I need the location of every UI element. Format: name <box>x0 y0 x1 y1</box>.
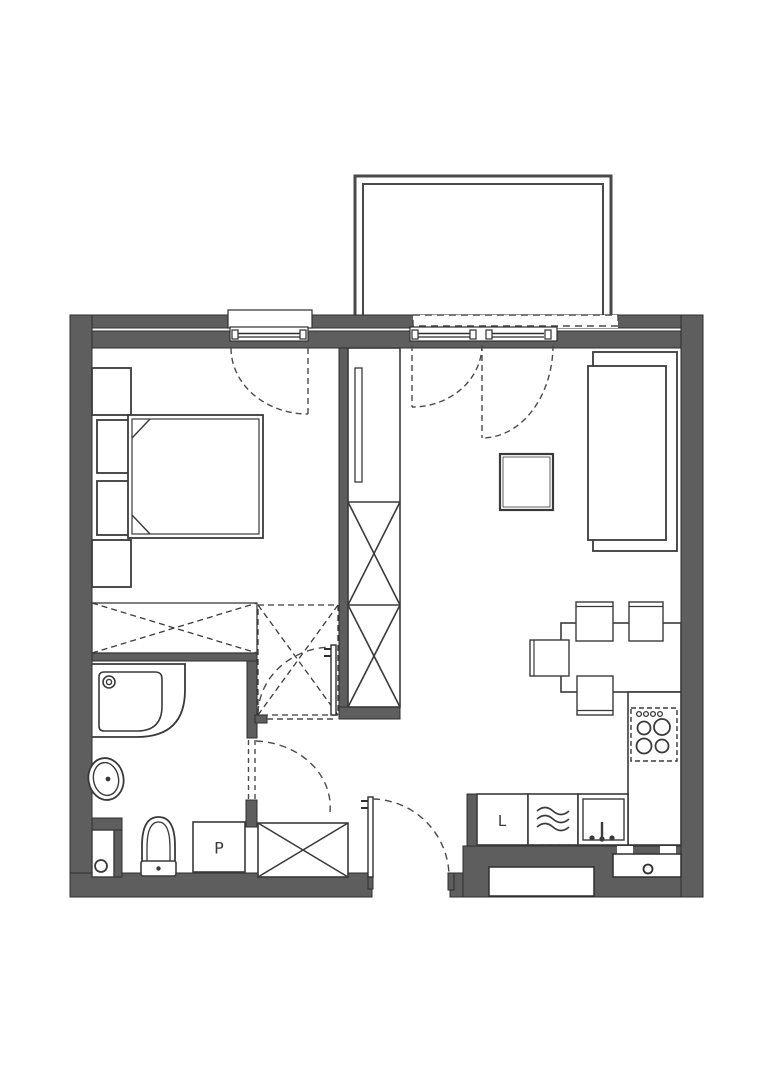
faucet-handle-2 <box>599 836 604 841</box>
balcony-door-swing-arc <box>412 345 482 407</box>
dining-chair-left <box>530 640 569 676</box>
entrance-door-leaf <box>368 797 373 877</box>
bottom-wall-notch-2 <box>660 846 676 854</box>
wall-bathroom-door-hinge-block <box>246 800 257 827</box>
sofa-seat <box>588 366 666 540</box>
bathroom-shaft-wall-side <box>114 830 122 877</box>
bedroom-door-leaf <box>331 645 336 715</box>
bottom-wall-recess <box>489 867 594 896</box>
hall <box>258 823 348 877</box>
floor-plan-page: L P <box>0 0 777 1080</box>
balcony-frame-cap-1 <box>412 330 418 339</box>
coffee-table-inner <box>503 457 550 507</box>
balcony-frame-cap-3 <box>486 330 492 339</box>
bathroom-shaft-wall-top <box>92 818 122 830</box>
entrance-door-swing-arc <box>373 799 449 875</box>
bedroom-window <box>228 310 312 414</box>
kitchen-sink-basin <box>583 799 624 840</box>
balcony-outer-rail <box>355 176 611 315</box>
bedroom-window-cap-right <box>300 330 306 339</box>
wall-bathroom-east <box>247 661 257 738</box>
bed-pillow-bottom <box>97 481 131 535</box>
wall-right <box>681 315 703 897</box>
dining-chair-top-1 <box>576 602 613 641</box>
wardrobe-column <box>348 348 400 707</box>
faucet-handle-3 <box>609 835 614 840</box>
shower-head-icon <box>103 676 115 688</box>
kitchen-counter-end-stub <box>467 794 477 846</box>
shower-head-center <box>106 679 111 684</box>
bedroom-door-swing-arc <box>258 647 331 713</box>
shaft-box <box>92 830 114 877</box>
dining-chair-bottom <box>577 676 613 715</box>
bed-mattress <box>132 419 259 534</box>
balcony-window-swing-arc <box>482 345 553 438</box>
bedroom <box>92 368 338 715</box>
toilet-flush-button <box>156 866 160 870</box>
entrance-door-jamb-right <box>448 873 454 890</box>
wall-top-inner-band <box>70 331 703 348</box>
balcony-frame-cap-2 <box>470 330 476 339</box>
bedroom-window-swing-arc <box>231 348 308 414</box>
shower-enclosure <box>92 664 185 737</box>
balcony-frame-cap-4 <box>545 330 551 339</box>
faucet-handle-1 <box>589 835 594 840</box>
shower-tray <box>99 672 162 731</box>
bottom-wall-notch-1 <box>617 846 633 854</box>
bedroom-window-sill <box>228 310 312 328</box>
nightstand-top <box>92 368 131 415</box>
floor-plan-drawing: L P <box>0 0 777 1080</box>
bed-pillow-top <box>97 420 131 473</box>
wardrobe-column-cap <box>339 707 400 719</box>
fridge-label: L <box>498 812 507 830</box>
bedroom-window-cap-left <box>232 330 238 339</box>
bathroom-door-swing-arc <box>256 741 330 812</box>
bedroom-door-jamb-left <box>255 715 267 723</box>
washing-machine-label: P <box>214 839 224 858</box>
dining-chair-top-2 <box>629 602 663 641</box>
nightstand-bottom <box>92 540 131 587</box>
wall-bedroom-south <box>92 653 257 661</box>
living-room <box>500 352 681 715</box>
balcony-inner-rail <box>363 184 603 315</box>
sink-drain <box>106 777 111 782</box>
wardrobe-mirror-strip <box>355 368 362 482</box>
wall-left <box>70 315 92 897</box>
wall-partition-bedroom-living <box>339 348 348 707</box>
balcony <box>355 176 611 315</box>
